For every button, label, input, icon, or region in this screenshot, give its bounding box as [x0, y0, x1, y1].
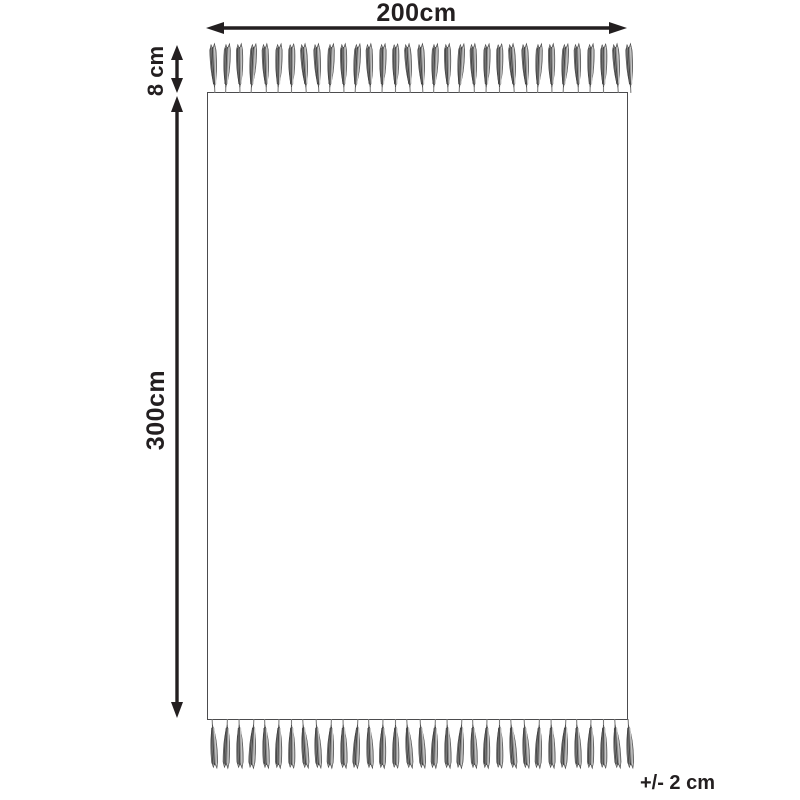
tassel — [584, 41, 598, 93]
tassel — [272, 41, 286, 93]
tassel — [272, 719, 286, 771]
tolerance-label: +/- 2 cm — [620, 772, 715, 795]
tassel — [480, 719, 494, 771]
rug-dimension-diagram: 200cm 8 cm 300cm +/- 2 cm — [0, 0, 800, 800]
rug-outline — [207, 92, 628, 720]
tassel — [584, 719, 598, 771]
height-dimension-arrow-icon — [170, 96, 184, 718]
tassel — [323, 41, 338, 93]
tassel — [376, 41, 390, 93]
top-fringe — [207, 41, 628, 93]
height-dimension-label: 300cm — [143, 365, 169, 455]
bottom-fringe — [207, 719, 628, 771]
tassel — [480, 41, 494, 93]
fringe-height-arrow-icon — [170, 45, 184, 93]
tassel — [323, 719, 338, 771]
tassel — [427, 719, 442, 771]
tassel — [622, 41, 638, 94]
width-dimension-arrow-icon — [206, 21, 627, 35]
tassel — [219, 719, 234, 771]
tassel — [531, 719, 546, 771]
fringe-height-label: 8 cm — [144, 41, 168, 101]
tassel — [219, 41, 234, 93]
tassel — [376, 719, 390, 771]
tassel — [622, 719, 638, 772]
tassel — [427, 41, 442, 93]
tassel — [531, 41, 546, 93]
